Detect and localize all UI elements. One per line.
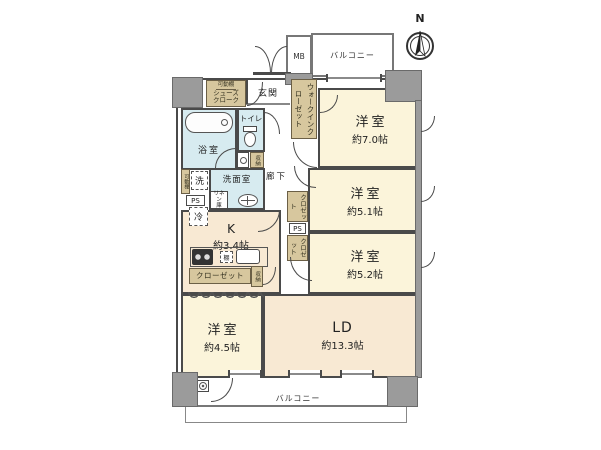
movable-shelf-label: 可動棚 — [183, 174, 189, 189]
bathroom-label: 浴室 — [198, 143, 220, 156]
walk-in-closet-label: ウォークインクローゼット — [292, 81, 316, 137]
room-north-label: 洋室 — [352, 111, 387, 130]
shoes-closet-label: シューズ クローク — [213, 90, 239, 105]
hall-fixture-icon — [237, 152, 249, 168]
room-east-1: 洋室 約5.1帖 — [308, 168, 422, 232]
shoes-closet: 可動棚 シューズ クローク — [206, 80, 246, 107]
room-east-2-label: 洋室 — [347, 246, 382, 265]
room-east-1-size: 約5.1帖 — [347, 203, 383, 218]
balcony-faucet-icon — [197, 380, 209, 392]
wall-right — [415, 100, 422, 378]
washroom-label: 洗面室 — [223, 173, 252, 185]
kitchen-shelf: 棚 — [220, 251, 233, 263]
toilet-label: トイレ — [240, 113, 263, 124]
wall-block-top-left — [172, 77, 203, 108]
living-dining-label: LD — [332, 320, 353, 336]
compass-icon — [403, 25, 437, 67]
west-storage-label: 収納 — [254, 271, 260, 282]
kitchen-label: K — [227, 222, 235, 236]
walk-in-closet: ウォークインクローゼット — [291, 79, 317, 139]
meter-box: MB — [286, 35, 312, 77]
compass: N — [402, 12, 438, 70]
fridge-space: 冷 — [189, 207, 208, 226]
hallway-label: 廊下 — [266, 170, 287, 182]
balcony-top-label: バルコニー — [330, 50, 375, 61]
compass-north-label: N — [415, 12, 424, 25]
room-west: 洋室 約4.5帖 — [181, 294, 263, 378]
washbasin-cross-h — [241, 200, 255, 201]
room-east-2-window-arc — [421, 252, 435, 268]
pipe-space-left-label: PS — [191, 197, 200, 205]
bathtub-icon — [185, 112, 233, 133]
window-south-3 — [340, 370, 374, 378]
floor-plan: N バルコニー MB バルコニー 浴室 トイレ 洗面室 洋室 約7.0帖 — [0, 0, 601, 450]
linen-storage: リネン 庫 — [210, 191, 228, 209]
wall-block-bottom-right — [387, 376, 418, 407]
washbasin-cross-v — [247, 196, 248, 205]
washer-label: 洗 — [195, 174, 204, 187]
washer-space: 洗 — [191, 171, 208, 190]
wall-block-top-right — [385, 70, 422, 102]
window-south-1 — [228, 370, 262, 378]
room-north-size: 約7.0帖 — [352, 131, 388, 146]
window-south-2 — [288, 370, 322, 378]
room-east-1-window-arc — [421, 186, 435, 202]
room-north-window-arc — [421, 116, 435, 132]
hall-storage: 収納 — [250, 152, 264, 168]
living-dining: LD 約13.3帖 — [263, 294, 422, 378]
fridge-label: 冷 — [194, 210, 203, 223]
kitchen-shelf-label: 棚 — [223, 253, 229, 262]
room-west-label: 洋室 — [204, 319, 239, 338]
stove-icon — [192, 249, 213, 265]
closet-folding-doors — [188, 292, 264, 300]
pipe-space-right-label: PS — [293, 225, 302, 233]
balcony-top: バルコニー — [311, 33, 394, 77]
linen-storage-label: リネン 庫 — [211, 191, 227, 209]
window-north — [326, 74, 382, 82]
room-west-size: 約4.5帖 — [204, 339, 240, 354]
pipe-space-left: PS — [186, 195, 205, 206]
closet-room-51: クロゼット — [287, 191, 308, 222]
movable-shelf: 可動棚 — [181, 169, 190, 194]
room-east-2-size: 約5.2帖 — [347, 266, 383, 281]
pipe-space-right: PS — [289, 223, 306, 234]
west-closet-label: クローゼット — [196, 272, 244, 281]
living-dining-size: 約13.3帖 — [321, 337, 363, 352]
balcony-bottom-label: バルコニー — [276, 393, 321, 405]
entrance-door-left-arc — [255, 46, 271, 73]
west-storage: 収納 — [251, 266, 263, 287]
hall-storage-label: 収納 — [254, 155, 260, 166]
west-closet: クローゼット — [189, 268, 251, 284]
balcony-rail — [185, 407, 407, 423]
entrance-door-right-arc — [271, 46, 287, 73]
room-east-1-label: 洋室 — [347, 183, 382, 202]
meter-box-label: MB — [293, 52, 305, 61]
kitchen-sink-icon — [236, 249, 260, 264]
closet-room-51-label: クロゼット — [288, 193, 308, 221]
room-east-2: 洋室 約5.2帖 — [308, 232, 422, 294]
wall-block-bottom-left — [172, 372, 198, 407]
